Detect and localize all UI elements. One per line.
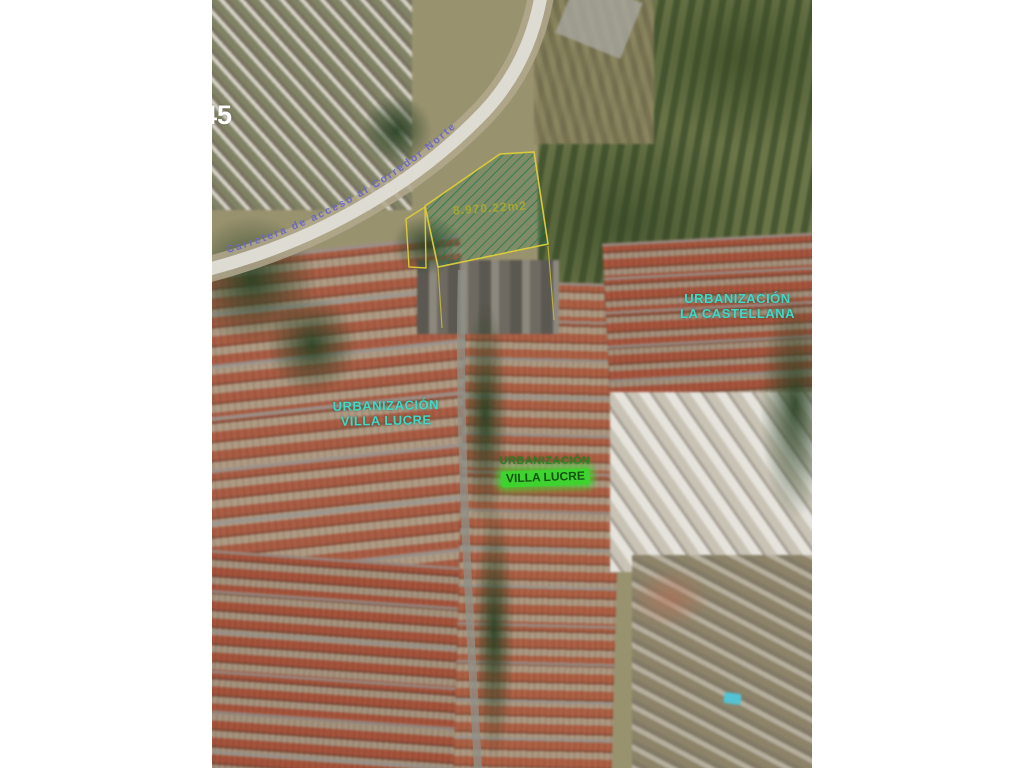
watermark-number: 45 xyxy=(212,100,232,131)
label-line: URBANIZACIÓN xyxy=(480,455,610,468)
label-urbanizacion-villa-lucre: URBANIZACIÓN VILLA LUCRE xyxy=(316,398,457,430)
label-urbanizacion-la-castellana: URBANIZACIÓN LA CASTELLANA xyxy=(660,292,812,322)
label-line: LA CASTELLANA xyxy=(660,307,812,322)
aerial-photo: Carretera de acceso al Corredor Norte 45… xyxy=(212,0,812,768)
label-urbanizacion-center-highlighted: URBANIZACIÓN VILLA LUCRE xyxy=(480,455,610,486)
label-line: VILLA LUCRE xyxy=(316,413,456,430)
map-annotation-overlay: Carretera de acceso al Corredor Norte xyxy=(212,0,812,768)
internal-street xyxy=(461,270,478,768)
parcel-side-strip-outline xyxy=(406,207,426,268)
label-line-highlighted: VILLA LUCRE xyxy=(500,468,589,487)
screenshot-canvas: Carretera de acceso al Corredor Norte 45… xyxy=(0,0,1024,768)
road-name-label: Carretera de acceso al Corredor Norte xyxy=(225,120,459,256)
label-line: URBANIZACIÓN xyxy=(660,292,812,307)
